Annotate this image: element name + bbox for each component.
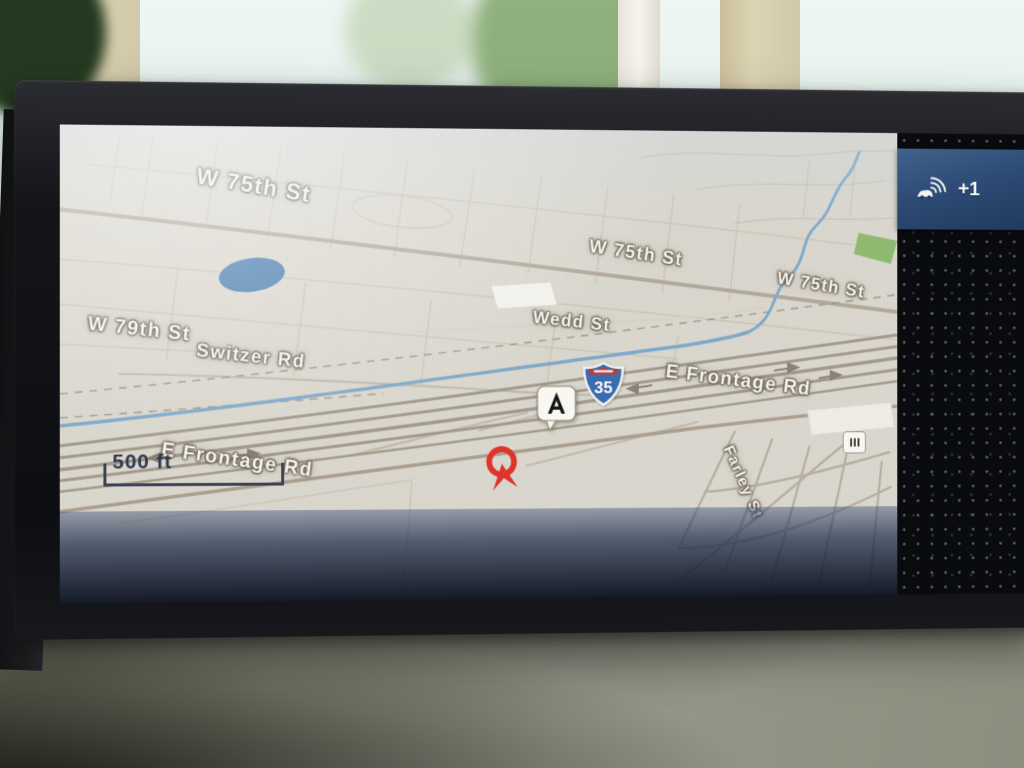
svg-text:35: 35 [594, 377, 613, 397]
connectivity-count: +1 [958, 178, 980, 201]
poi-icon[interactable] [843, 431, 866, 453]
infotainment-display: W 75th St W 75th St W 75th St Wedd St W … [14, 80, 1024, 640]
bottom-overlay-band [60, 506, 897, 603]
map-scale-bar: 500 ft [103, 463, 284, 487]
acura-dealer-pin[interactable] [535, 383, 579, 434]
navigation-map[interactable]: W 75th St W 75th St W 75th St Wedd St W … [60, 124, 897, 603]
tree-foliage [345, 0, 475, 90]
park-area [854, 233, 897, 264]
map-scale-label: 500 ft [112, 450, 172, 474]
photo-of-infotainment-screen: W 75th St W 75th St W 75th St Wedd St W … [0, 0, 1024, 768]
connectivity-status-bar[interactable]: +1 [897, 148, 1024, 230]
building-footprint [491, 282, 558, 310]
interstate-35-shield: 35 [581, 360, 626, 408]
car-wifi-icon [916, 175, 949, 204]
display-screen: W 75th St W 75th St W 75th St Wedd St W … [60, 124, 1024, 603]
pond [217, 254, 287, 296]
right-panel: +1 [897, 133, 1024, 594]
vehicle-position-marker [473, 440, 530, 495]
